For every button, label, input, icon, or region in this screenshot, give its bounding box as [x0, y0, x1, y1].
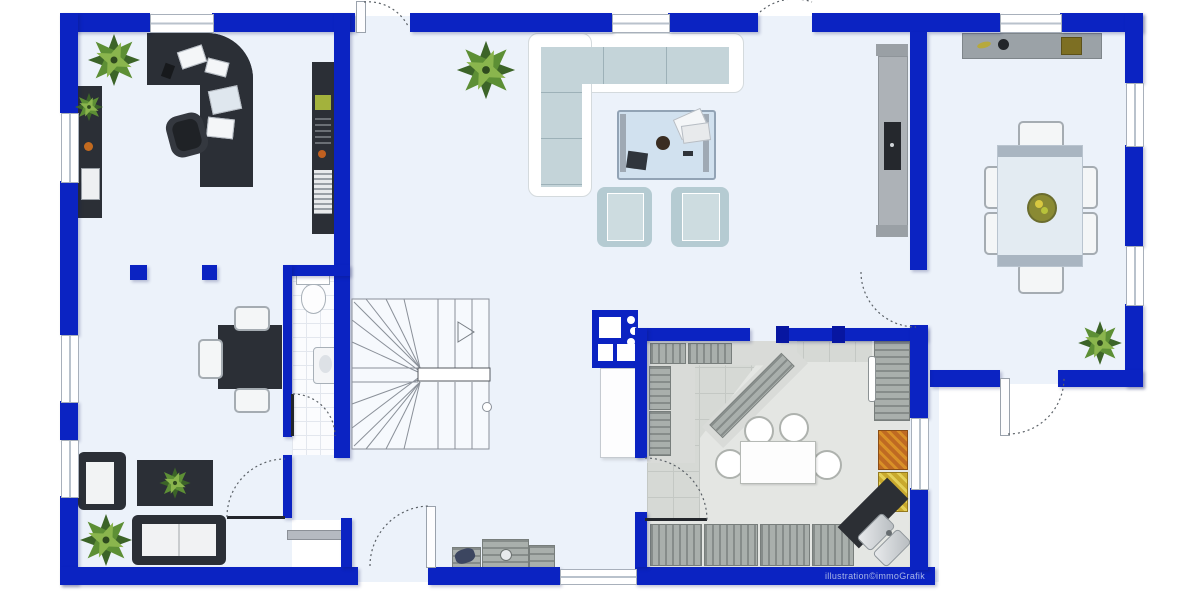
- window: [61, 335, 79, 403]
- faucet: [886, 530, 892, 536]
- wall-interior: [283, 455, 292, 518]
- wall-segment: [668, 13, 758, 32]
- wall-segment: [60, 401, 78, 440]
- wall-pier: [832, 326, 845, 343]
- fridge: [874, 341, 910, 421]
- utility-square: [617, 344, 635, 361]
- wall-kitchen-left: [635, 328, 647, 458]
- wall-kitchen-right: [910, 325, 928, 418]
- closet-sliding-door: [287, 530, 345, 540]
- utility-unit: [592, 310, 638, 368]
- kitchen-counter: [649, 366, 671, 410]
- chair: [198, 339, 223, 379]
- tv-unit-cap: [876, 44, 908, 56]
- wall-segment: [60, 181, 78, 335]
- window: [612, 14, 670, 33]
- kitchen-counter: [650, 524, 702, 566]
- wall-segment: [428, 567, 560, 585]
- teapot: [656, 136, 670, 150]
- door-leaf-room: [227, 516, 285, 519]
- sofa-seam: [178, 524, 180, 556]
- wall-kitchen-top: [637, 328, 750, 341]
- wall-segment: [60, 567, 358, 585]
- tv-unit-cap: [876, 225, 908, 237]
- wall-segment: [1125, 145, 1143, 246]
- window: [911, 418, 929, 490]
- utility-dot: [627, 316, 635, 324]
- decor-gold-box: [1061, 37, 1082, 55]
- lounge-chair: [671, 187, 729, 247]
- wall-kitchen-right: [910, 488, 928, 570]
- shoe-cabinet: [529, 545, 555, 569]
- shelf-books: [315, 118, 331, 144]
- decor-item: [84, 142, 93, 151]
- remote: [683, 151, 693, 156]
- window: [1000, 14, 1062, 33]
- kitchen-counter: [704, 524, 758, 566]
- shelf-item-orange: [318, 150, 326, 158]
- table-edge: [998, 255, 1082, 266]
- wc-toilet: [301, 284, 326, 314]
- wc-door: [291, 394, 294, 436]
- chair: [234, 388, 270, 413]
- cabinet-knob: [500, 549, 512, 561]
- window: [61, 440, 79, 498]
- desk-papers: [206, 117, 235, 140]
- wall-pillar: [202, 265, 217, 280]
- tv-dot: [890, 143, 894, 147]
- shelf-item-green: [315, 95, 331, 110]
- wall-segment: [812, 13, 1000, 32]
- shelf-files: [314, 170, 332, 214]
- utility-square: [599, 317, 621, 338]
- dark-sofa: [132, 515, 226, 565]
- kitchen-counter: [650, 343, 686, 364]
- door-leaf-terrace: [1000, 378, 1010, 436]
- decor-box: [81, 168, 100, 200]
- lounge-chair: [597, 187, 652, 247]
- wall-pier: [776, 326, 789, 343]
- sink-basin: [319, 355, 332, 373]
- decor-bowl: [998, 39, 1009, 50]
- bar-stool: [779, 413, 809, 443]
- kitchen-counter: [760, 524, 810, 566]
- tv-screen: [884, 122, 901, 170]
- window: [61, 113, 79, 183]
- window: [560, 569, 637, 585]
- table-edge: [998, 146, 1082, 157]
- wall-segment: [60, 13, 78, 113]
- fridge-handle: [868, 356, 876, 402]
- shoe-cabinet: [482, 539, 529, 569]
- dark-armchair: [78, 452, 126, 510]
- dark-coffee-table: [137, 460, 213, 506]
- window: [1126, 83, 1144, 147]
- wall-interior: [334, 13, 350, 458]
- door-leaf-top: [356, 1, 366, 33]
- square-table: [218, 325, 282, 389]
- chair: [234, 306, 270, 331]
- wall-segment: [1125, 13, 1143, 83]
- table-rail: [620, 114, 626, 172]
- dining-chair: [1018, 263, 1064, 294]
- magazines: [681, 122, 711, 144]
- kitchen-island: [740, 441, 816, 484]
- closet-floor: [292, 520, 341, 567]
- sofa-cushions: [541, 47, 582, 187]
- watermark: illustration©immoGrafik: [810, 571, 940, 581]
- office-chair-seat: [171, 117, 204, 153]
- wall-wc-top: [283, 265, 350, 276]
- wall-kitchen-top: [778, 328, 927, 341]
- utility-dot: [627, 338, 635, 346]
- chair-cushion: [607, 193, 644, 241]
- door-leaf-entrance: [426, 506, 436, 568]
- kitchen-counter: [649, 411, 671, 456]
- wall-dining-left: [910, 32, 927, 270]
- wall-interior: [341, 518, 352, 567]
- chair-cushion: [682, 193, 720, 241]
- dining-sideboard: [962, 33, 1102, 59]
- wall-segment: [410, 13, 612, 32]
- wall-segment: [930, 370, 1000, 387]
- armchair-cushion: [86, 462, 114, 504]
- door-leaf-kitchen: [645, 518, 707, 521]
- wall-segment: [1058, 370, 1143, 387]
- dining-table: [997, 145, 1083, 267]
- window: [150, 14, 214, 33]
- decor-sprig: [976, 40, 991, 49]
- floor-plan: illustration©immoGrafik: [0, 0, 1200, 600]
- fruit: [1041, 207, 1048, 214]
- kitchen-counter: [688, 343, 732, 364]
- wall-pillar: [130, 265, 147, 280]
- fruit-crate: [878, 430, 908, 470]
- bar-stool: [812, 450, 842, 480]
- utility-square: [598, 344, 613, 361]
- window: [1126, 246, 1144, 306]
- tablet: [626, 151, 648, 171]
- fruit-bowl: [1027, 193, 1057, 223]
